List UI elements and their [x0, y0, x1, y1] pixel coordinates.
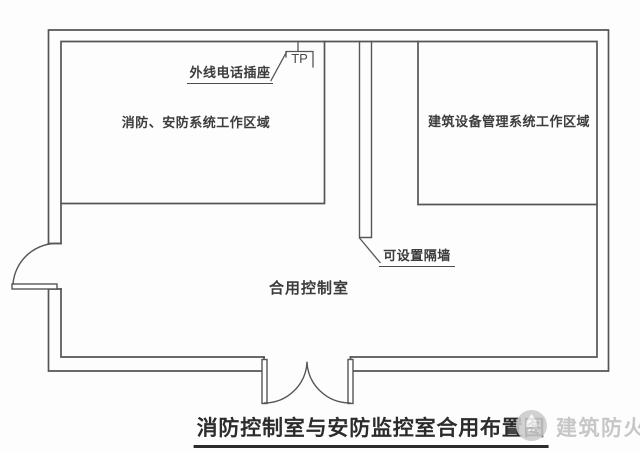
telephone-socket-label: 外线电话插座	[187, 62, 273, 84]
watermark-fire-logo-icon	[515, 409, 548, 442]
outer-wall	[49, 30, 609, 371]
leader-lines	[271, 52, 380, 263]
combined-control-room-label: 合用控制室	[269, 277, 349, 298]
left-door	[12, 243, 60, 289]
watermark-text: 建筑防火	[556, 412, 640, 442]
floor-plan-page: 消防、安防系统工作区域 建筑设备管理系统工作区域 合用控制室 外线电话插座 可设…	[0, 0, 640, 453]
tp-symbol-label: TP	[287, 51, 312, 66]
partition-wall-label: 可设置隔墙	[379, 245, 455, 267]
floor-plan-drawing	[0, 0, 640, 453]
right-work-area-label: 建筑设备管理系统工作区域	[428, 111, 590, 130]
left-work-area-label: 消防、安防系统工作区域	[122, 112, 271, 131]
optional-partition-wall	[360, 42, 372, 238]
inner-wall	[49, 42, 598, 372]
diagram-title: 消防控制室与安防监控室合用布置图	[194, 412, 549, 448]
bottom-double-door	[262, 360, 353, 404]
